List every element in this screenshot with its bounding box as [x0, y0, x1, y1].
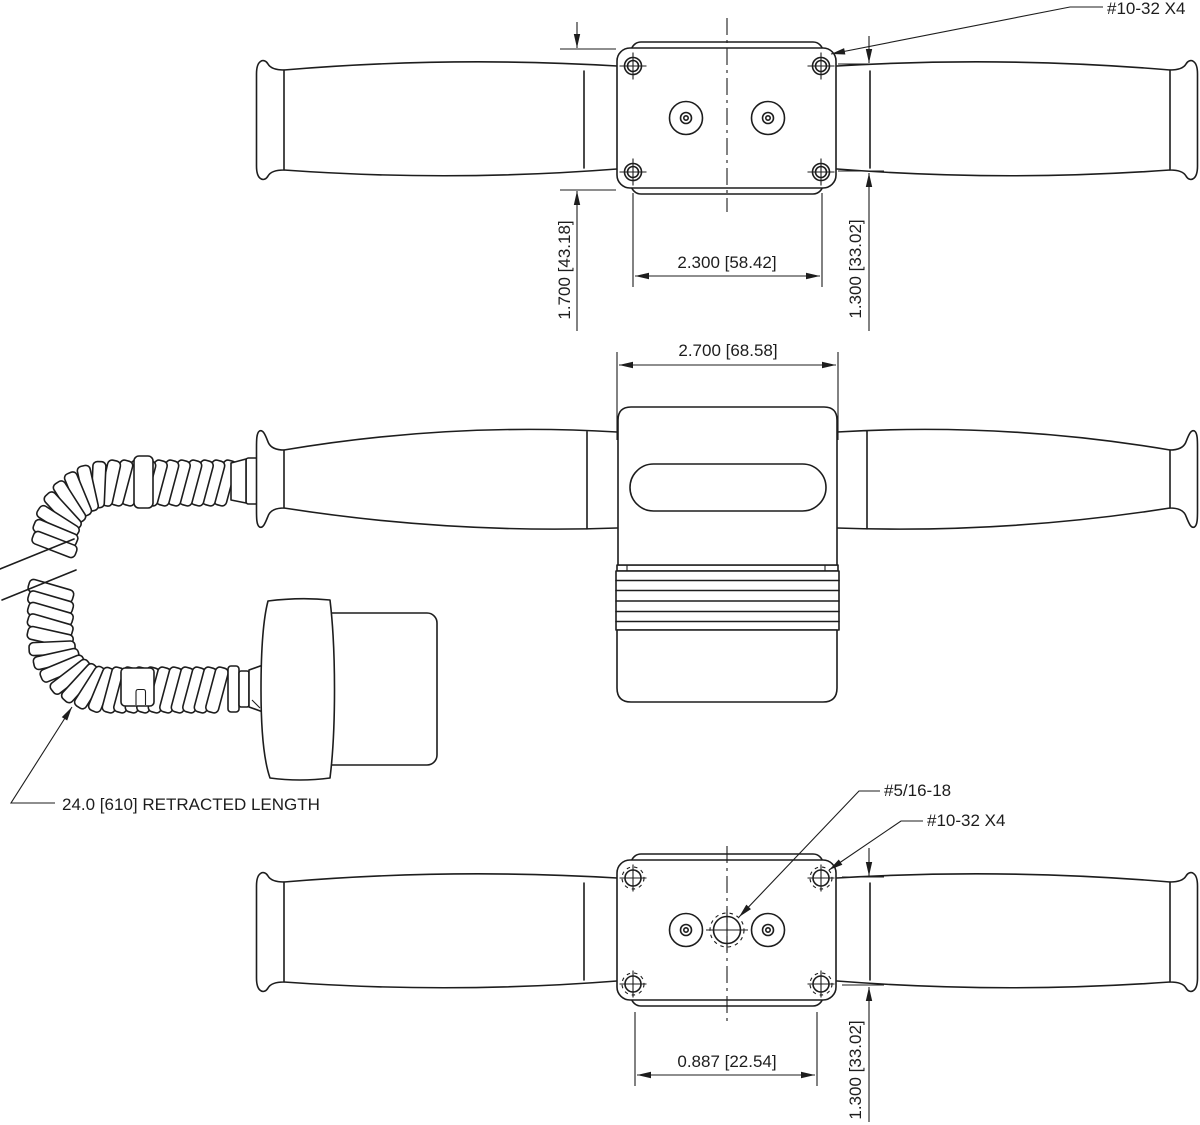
button [752, 102, 785, 135]
dim-box-width-label: 2.300 [58.42] [677, 253, 776, 272]
cable-retracted-length-label: 24.0 [610] RETRACTED LENGTH [62, 795, 320, 814]
technical-drawing: 1.700 [43.18] 2.300 [58.42] 1.300 [33.02… [0, 0, 1200, 1125]
dim-hole-width-label: 0.887 [22.54] [677, 1052, 776, 1071]
button [670, 914, 703, 947]
plug-cap [261, 599, 335, 780]
top-view [257, 18, 1198, 212]
dim-hole-spacing-label-top: 1.300 [33.02] [846, 219, 865, 318]
left-handle-end [257, 873, 285, 992]
front-view [0, 407, 1198, 780]
right-handle [837, 874, 1170, 988]
button [670, 102, 703, 135]
screw-callout-label-bottom: #10-32 X4 [927, 811, 1005, 830]
left-handle [284, 874, 617, 988]
plug-body [321, 613, 437, 765]
right-handle [837, 429, 1170, 529]
right-handle-end [1170, 61, 1198, 180]
bottom-view [257, 846, 1198, 1022]
left-handle-end [257, 431, 285, 528]
leader-line [831, 7, 1103, 54]
coiled-cable [26, 456, 258, 714]
dim-body-width-label: 2.700 [68.58] [678, 341, 777, 360]
right-handle-end [1170, 431, 1198, 528]
connector-plug [228, 599, 437, 780]
leader-line [11, 707, 72, 803]
button [752, 914, 785, 947]
left-handle [284, 429, 617, 529]
left-handle [284, 62, 617, 176]
right-handle [837, 62, 1170, 176]
leader-line [829, 821, 923, 870]
dim-hole-spacing-label-bottom: 1.300 [33.02] [846, 1020, 865, 1119]
left-handle-end [257, 61, 285, 180]
dim-box-height-label: 1.700 [43.18] [555, 220, 574, 319]
right-handle-end [1170, 873, 1198, 992]
lower-body [617, 630, 837, 702]
control-box-front [618, 407, 837, 565]
dimensions: 1.700 [43.18] 2.300 [58.42] 1.300 [33.02… [11, 0, 1185, 1122]
screw-callout-label-top: #10-32 X4 [1107, 0, 1185, 18]
center-thread-callout-label: #5/16-18 [884, 781, 951, 800]
